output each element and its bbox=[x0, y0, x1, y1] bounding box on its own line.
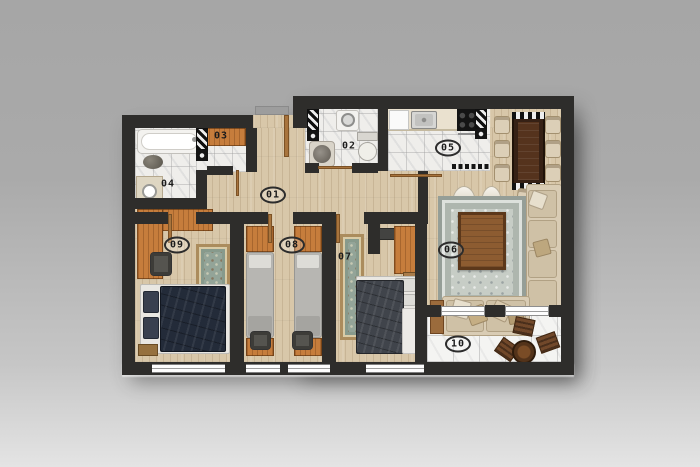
sink-04 bbox=[142, 184, 157, 199]
wall-02-bottom-right bbox=[352, 163, 378, 173]
bed-09-pillow bbox=[143, 317, 159, 339]
bed-07-duvet bbox=[356, 280, 404, 354]
balcony-post bbox=[427, 305, 441, 317]
floor-plan-canvas: 01 02 03 04 05 06 07 08 09 10 bbox=[0, 0, 700, 467]
room-label-09: 09 bbox=[164, 237, 190, 254]
room-label-07: 07 bbox=[338, 252, 352, 263]
dining-table-top bbox=[518, 122, 539, 180]
entry-threshold bbox=[255, 106, 289, 115]
room-label-06: 06 bbox=[438, 242, 464, 259]
door-leaf-07 bbox=[336, 214, 340, 243]
shaft-vent bbox=[196, 150, 208, 161]
dining-chair bbox=[545, 140, 561, 158]
wardrobe-07 bbox=[394, 226, 416, 274]
room-label-02-text: 02 bbox=[342, 141, 356, 152]
wall-07-06 bbox=[415, 212, 427, 362]
room-label-01-text: 01 bbox=[266, 190, 280, 201]
wall-bedrooms-top-b bbox=[196, 212, 268, 224]
kitchen-sink-basin bbox=[415, 114, 433, 126]
nightstand-09 bbox=[138, 344, 158, 356]
wall-hall-stub bbox=[418, 171, 428, 212]
door-leaf-hall03 bbox=[236, 170, 239, 196]
cooktop-caption bbox=[458, 133, 476, 135]
wall-hall03-bottom bbox=[207, 166, 233, 175]
room-label-05-text: 05 bbox=[441, 143, 455, 154]
bathtub-basin bbox=[141, 133, 198, 150]
dining-chair bbox=[494, 140, 510, 158]
balcony-post bbox=[549, 305, 561, 317]
shaft-vent bbox=[307, 131, 319, 141]
room-label-10: 10 bbox=[445, 336, 471, 353]
toilet-tank-02 bbox=[357, 132, 378, 141]
armchair-09 bbox=[150, 252, 172, 276]
wall-04-right-lower bbox=[196, 170, 207, 209]
wall-bedrooms-top-c bbox=[293, 212, 336, 224]
room-label-09-text: 09 bbox=[170, 240, 184, 251]
room-label-03: 03 bbox=[214, 131, 228, 142]
armchair-08b bbox=[292, 331, 313, 350]
bed-09-pillow bbox=[143, 291, 159, 313]
dining-chair bbox=[494, 164, 510, 182]
window-room-07 bbox=[366, 364, 424, 373]
wall-bedrooms-top-a bbox=[135, 212, 168, 224]
balcony-window bbox=[441, 306, 485, 316]
bed-09-duvet bbox=[160, 286, 226, 352]
dining-chair bbox=[545, 164, 561, 182]
room-label-08-text: 08 bbox=[285, 240, 299, 251]
shaft-hatch bbox=[196, 128, 208, 150]
balcony-sliding-door bbox=[505, 306, 549, 316]
pillow-08a bbox=[248, 254, 272, 269]
wall-04-bottom bbox=[135, 198, 196, 209]
cooktop bbox=[457, 109, 477, 131]
shaft-vent bbox=[475, 129, 487, 139]
balcony-post bbox=[485, 305, 505, 317]
wall-outer-left bbox=[122, 115, 135, 375]
shaft-hatch bbox=[475, 109, 487, 129]
room-label-10-text: 10 bbox=[451, 339, 465, 350]
wall-outer-top-right bbox=[293, 96, 574, 109]
room-label-01: 01 bbox=[260, 187, 286, 204]
door-leaf-02 bbox=[318, 166, 352, 169]
door-leaf-08 bbox=[268, 214, 272, 243]
fridge bbox=[389, 110, 409, 130]
window-room-09 bbox=[152, 364, 225, 373]
wall-02-bottom-left bbox=[305, 163, 319, 173]
room-label-03-text: 03 bbox=[214, 131, 228, 142]
balcony-table bbox=[512, 340, 536, 364]
room-label-05: 05 bbox=[435, 140, 461, 157]
room-label-04: 04 bbox=[161, 179, 175, 190]
wall-outer-top-left bbox=[122, 115, 253, 128]
wall-07-entry-stub bbox=[368, 224, 380, 254]
wall-09-08 bbox=[230, 224, 244, 362]
room-label-08: 08 bbox=[279, 237, 305, 254]
room-label-02: 02 bbox=[342, 141, 356, 152]
room-label-06-text: 06 bbox=[444, 245, 458, 256]
washer-drum bbox=[341, 113, 355, 127]
room-label-07-text: 07 bbox=[338, 252, 352, 263]
coffee-table bbox=[458, 212, 506, 270]
entry-door-leaf bbox=[284, 115, 289, 157]
kitchen-vent-dots bbox=[452, 164, 489, 169]
toilet-04 bbox=[143, 155, 163, 169]
dining-chair bbox=[494, 116, 510, 134]
window-mullion bbox=[280, 364, 288, 373]
armchair-08a bbox=[250, 331, 271, 350]
toilet-bowl-02 bbox=[358, 142, 377, 161]
shaft-hatch bbox=[307, 109, 319, 131]
room-label-04-text: 04 bbox=[161, 179, 175, 190]
sink-bowl-02 bbox=[313, 145, 331, 163]
wall-02-05-divider bbox=[378, 109, 388, 171]
dining-chair bbox=[545, 116, 561, 134]
pillow-08b bbox=[296, 254, 320, 269]
door-leaf-kitchen bbox=[390, 174, 442, 177]
wall-outer-right bbox=[561, 96, 574, 375]
wall-08-07 bbox=[322, 224, 336, 362]
sofa-cushion bbox=[528, 280, 557, 308]
window-room-08 bbox=[246, 364, 330, 373]
dining-table-runner bbox=[512, 112, 545, 119]
wall-03-right bbox=[246, 128, 257, 172]
